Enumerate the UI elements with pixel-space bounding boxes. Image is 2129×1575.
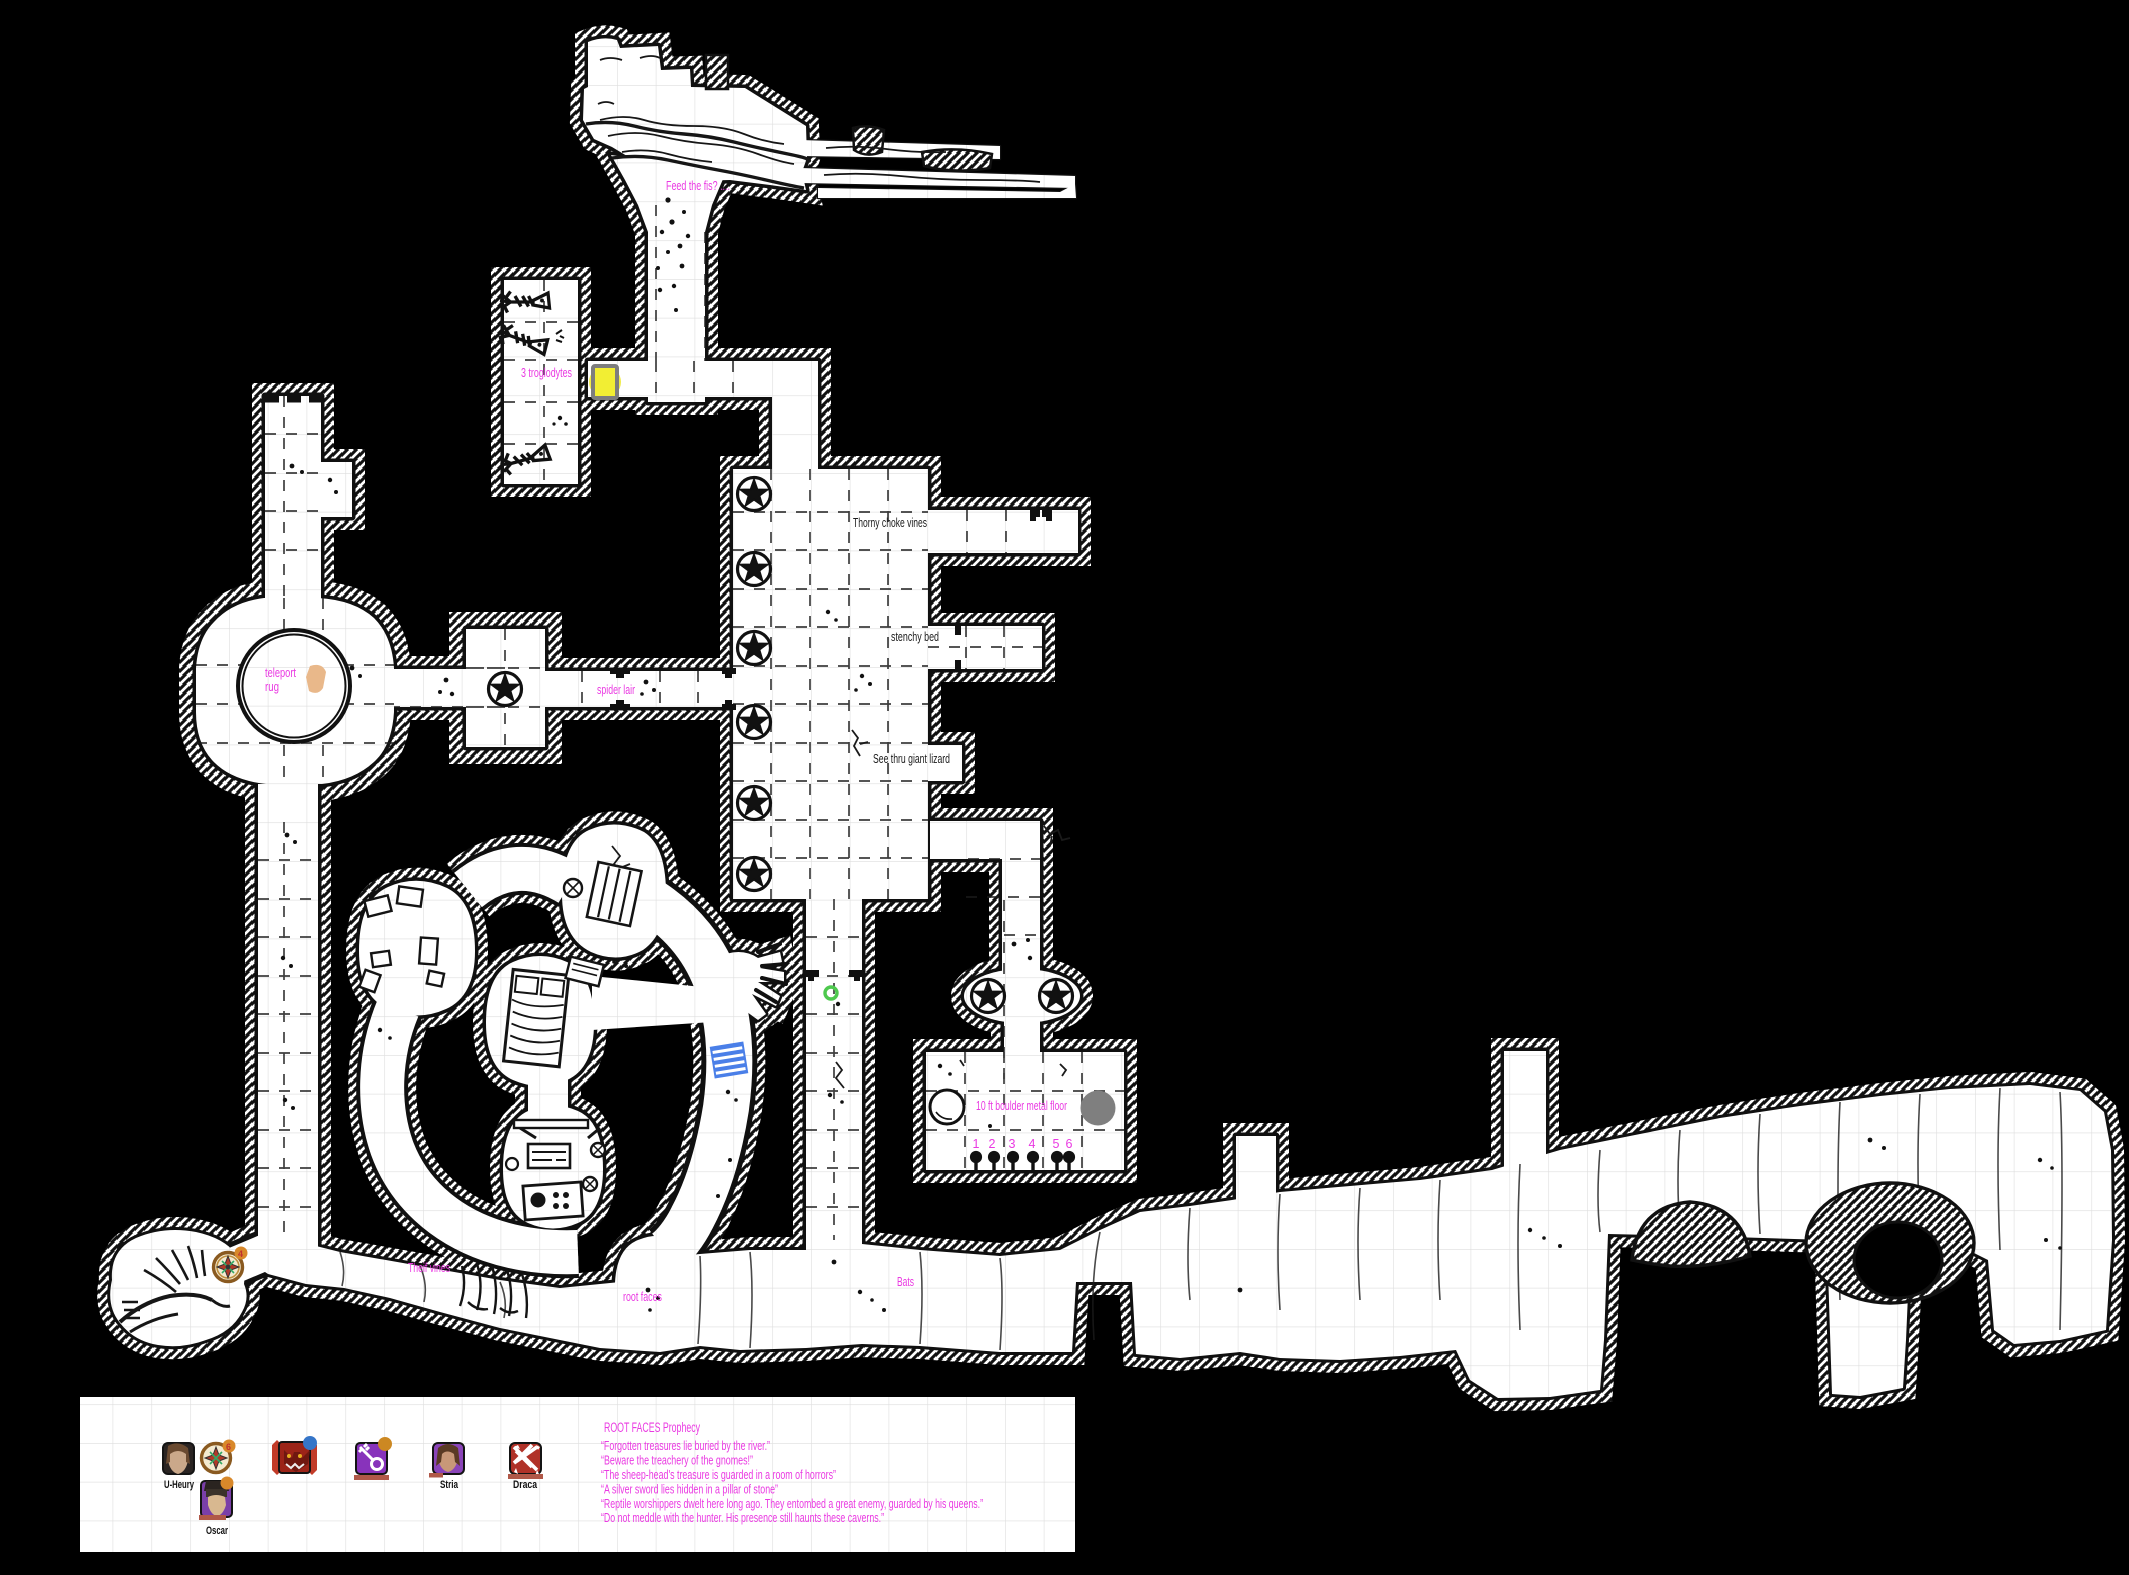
svg-text:10 ft boulder metal floor: 10 ft boulder metal floor xyxy=(976,1099,1067,1113)
svg-text:“Forgotten treasures lie burie: “Forgotten treasures lie buried by the r… xyxy=(601,1439,770,1453)
svg-text:rug: rug xyxy=(265,680,279,694)
svg-text:5: 5 xyxy=(1053,1137,1060,1151)
svg-text:4: 4 xyxy=(238,1249,243,1259)
svg-text:“Beware the treachery of the g: “Beware the treachery of the gnomes!” xyxy=(601,1454,753,1468)
svg-text:2: 2 xyxy=(989,1137,996,1151)
svg-text:Feed the fis? ....: Feed the fis? .... xyxy=(666,179,730,193)
svg-text:“A silver sword lies hidden in: “A silver sword lies hidden in a pillar … xyxy=(601,1483,778,1497)
svg-text:Draca: Draca xyxy=(513,1479,538,1491)
svg-text:“Reptile worshippers dwelt her: “Reptile worshippers dwelt here long ago… xyxy=(601,1497,983,1511)
svg-text:3: 3 xyxy=(1009,1137,1016,1151)
svg-text:6: 6 xyxy=(1066,1137,1073,1151)
svg-text:teleport: teleport xyxy=(265,666,296,680)
svg-text:Theif vines: Theif vines xyxy=(408,1261,450,1275)
svg-text:ROOT FACES Prophecy: ROOT FACES Prophecy xyxy=(604,1420,700,1435)
svg-text:3 troglodytes: 3 troglodytes xyxy=(521,366,572,380)
svg-text:4: 4 xyxy=(1029,1137,1036,1151)
svg-text:stenchy bed: stenchy bed xyxy=(891,630,939,644)
svg-text:See thru giant lizard: See thru giant lizard xyxy=(873,752,950,766)
svg-text:6: 6 xyxy=(226,1442,231,1452)
svg-text:root faces: root faces xyxy=(623,1290,662,1304)
svg-text:Stria: Stria xyxy=(440,1479,459,1491)
svg-text:U-Heury: U-Heury xyxy=(164,1479,195,1491)
svg-text:“Do not meddle with the hunter: “Do not meddle with the hunter. His pres… xyxy=(601,1511,884,1525)
svg-text:“The sheep-head's treasure is: “The sheep-head's treasure is guarded in… xyxy=(601,1468,836,1482)
svg-text:Thorny choke vines: Thorny choke vines xyxy=(853,516,927,530)
svg-text:spider lair: spider lair xyxy=(597,683,635,697)
svg-text:Bats: Bats xyxy=(897,1275,914,1289)
svg-text:1: 1 xyxy=(973,1137,980,1151)
svg-text:Oscar: Oscar xyxy=(206,1525,228,1537)
